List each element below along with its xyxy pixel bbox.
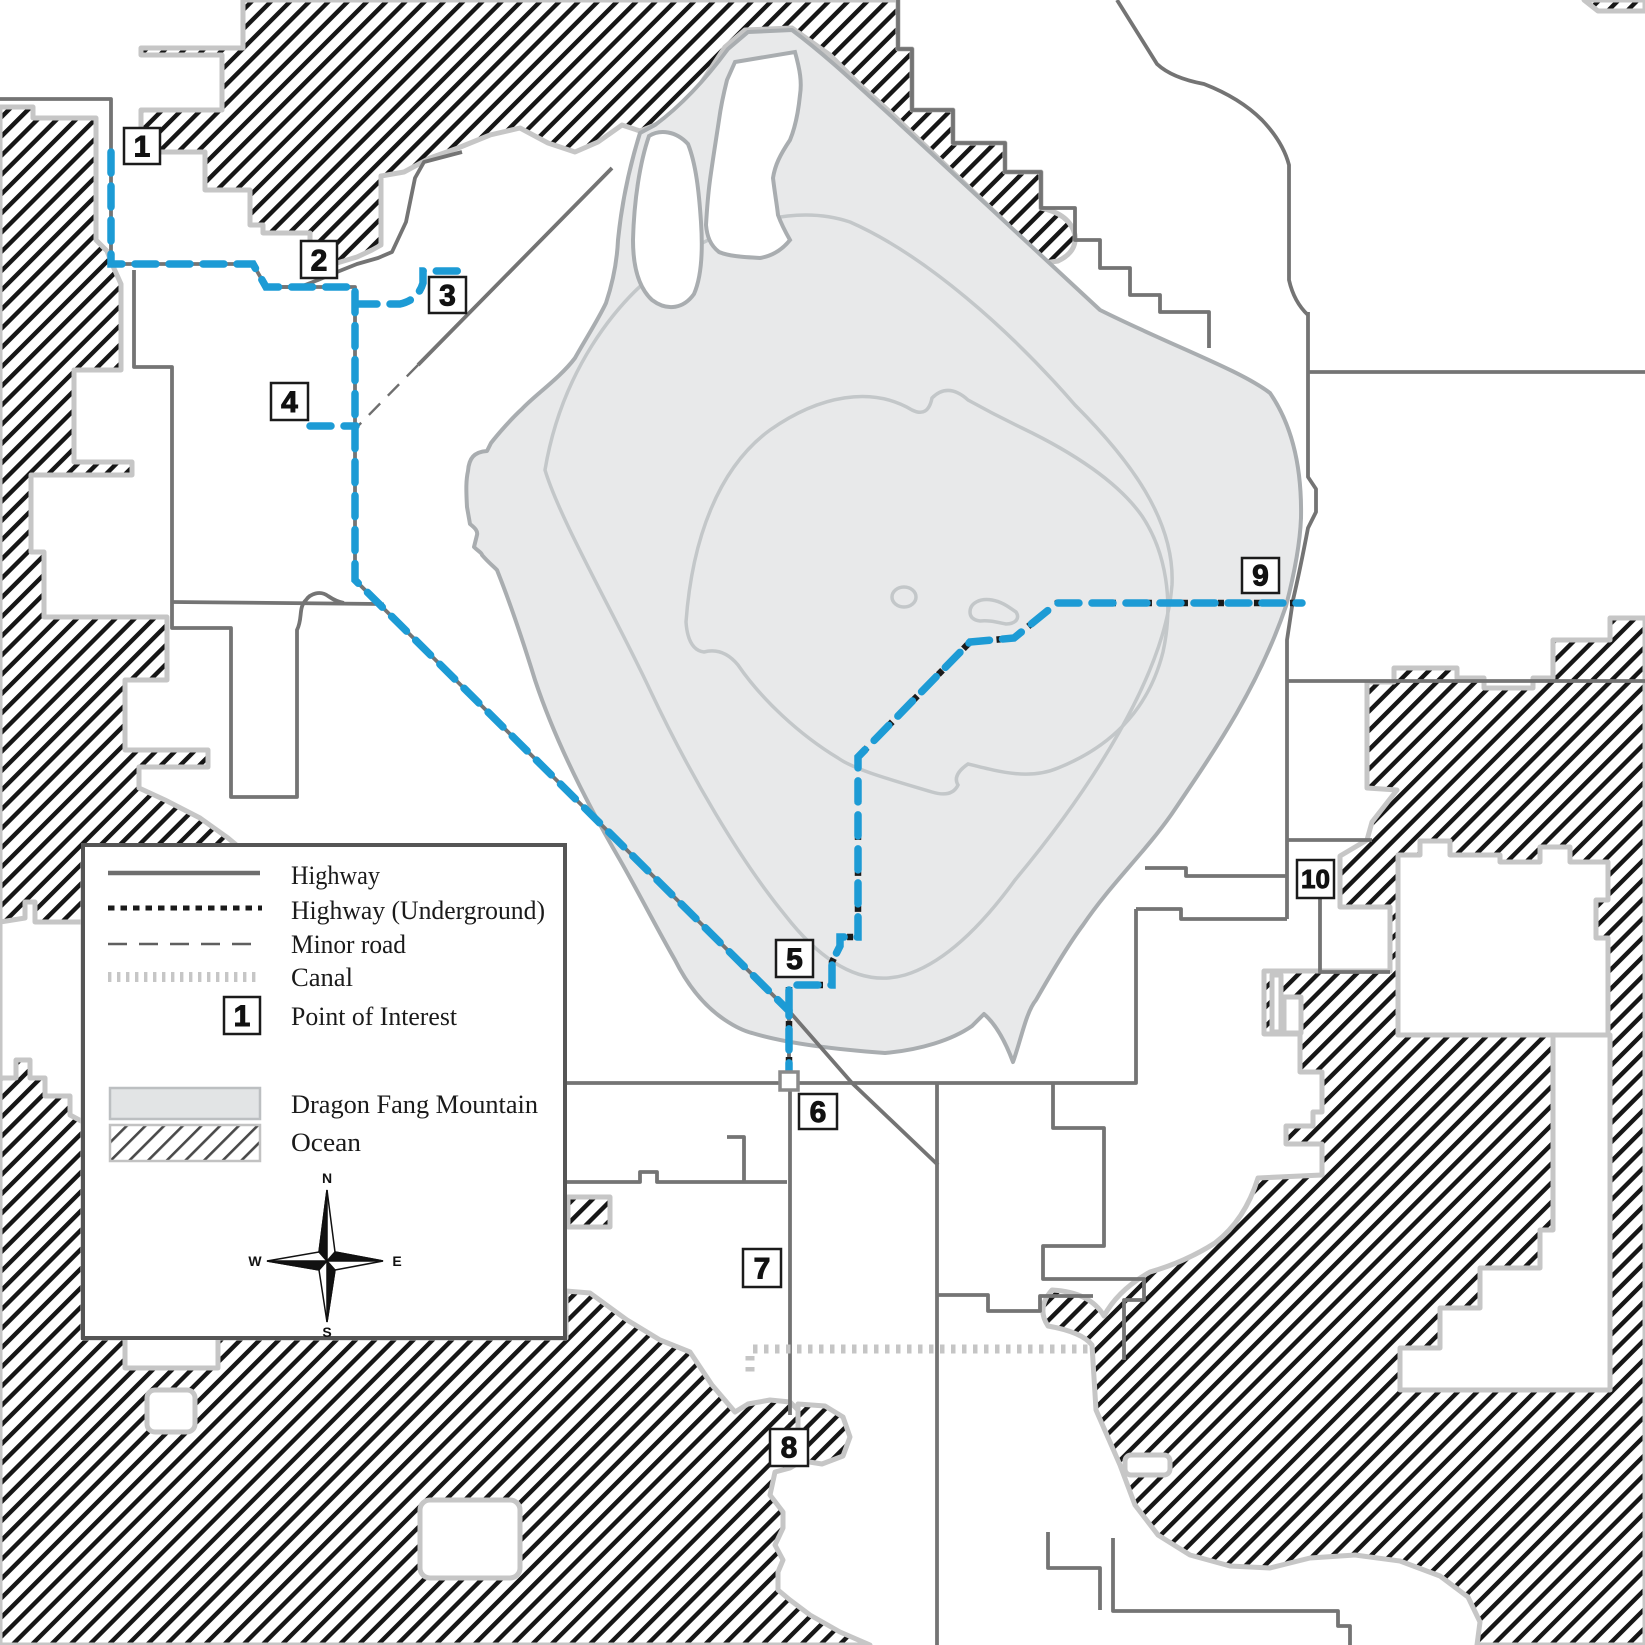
svg-text:Highway (Underground): Highway (Underground) (291, 896, 545, 925)
svg-text:2: 2 (311, 245, 328, 278)
svg-text:7: 7 (754, 1253, 771, 1286)
svg-text:1: 1 (134, 131, 151, 164)
svg-text:1: 1 (234, 1000, 251, 1033)
svg-text:4: 4 (281, 386, 298, 419)
svg-text:8: 8 (781, 1432, 798, 1465)
svg-text:9: 9 (1252, 560, 1269, 593)
svg-text:Canal: Canal (291, 963, 353, 992)
svg-text:E: E (392, 1253, 401, 1269)
svg-text:10: 10 (1301, 864, 1330, 894)
svg-text:N: N (322, 1170, 332, 1186)
svg-text:W: W (248, 1253, 262, 1269)
svg-text:Ocean: Ocean (291, 1128, 361, 1157)
svg-text:Point of Interest: Point of Interest (291, 1002, 458, 1031)
svg-text:Minor road: Minor road (291, 930, 406, 959)
svg-text:6: 6 (810, 1096, 827, 1129)
svg-text:5: 5 (786, 943, 803, 976)
svg-text:Highway: Highway (291, 861, 380, 890)
svg-text:S: S (322, 1324, 331, 1340)
svg-text:Dragon Fang Mountain: Dragon Fang Mountain (291, 1090, 538, 1119)
svg-text:3: 3 (439, 280, 456, 313)
